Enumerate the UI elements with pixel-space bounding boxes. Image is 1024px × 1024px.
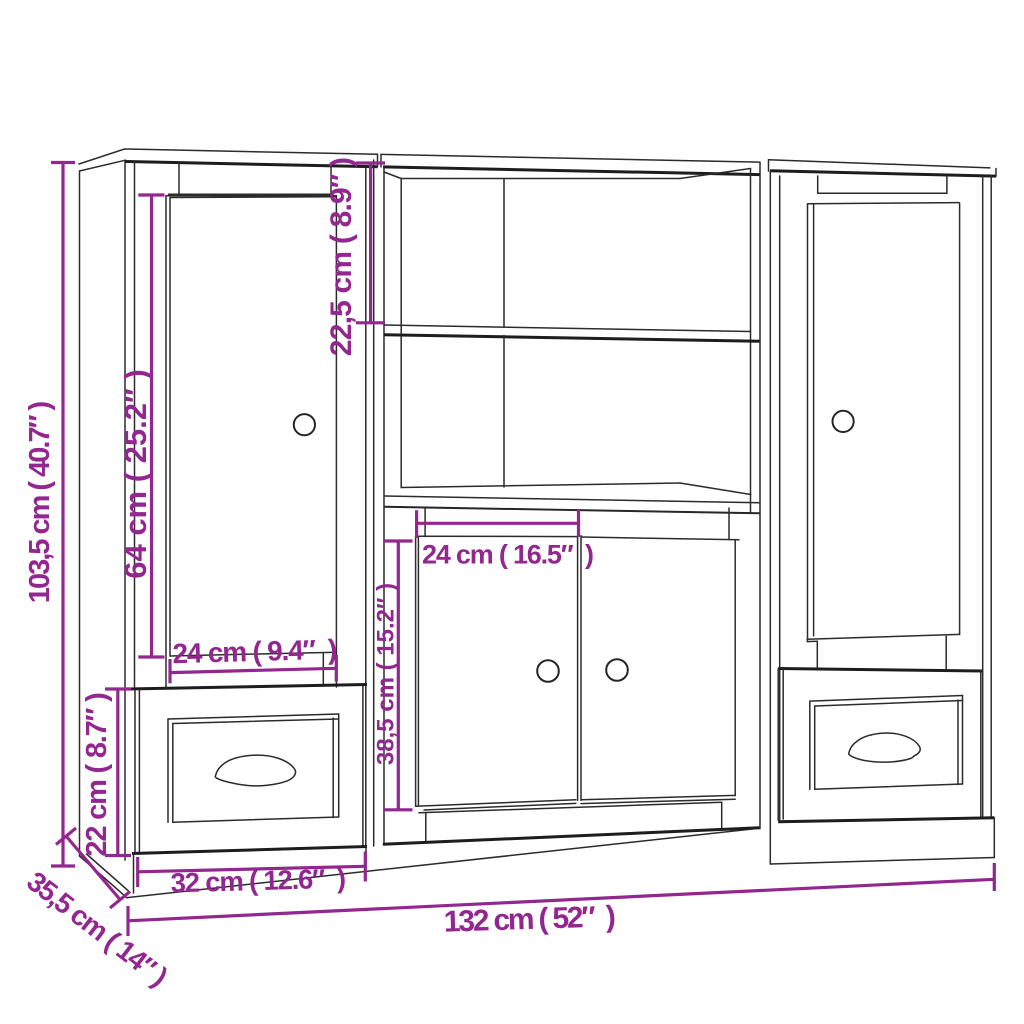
svg-text:22,5 cm ( 8.9″ ): 22,5 cm ( 8.9″ ) — [325, 158, 358, 356]
svg-text:24 cm ( 16.5″ ): 24 cm ( 16.5″ ) — [422, 540, 593, 570]
svg-text:132 cm ( 52″ ): 132 cm ( 52″ ) — [443, 900, 615, 938]
svg-text:32 cm ( 12.6″ ): 32 cm ( 12.6″ ) — [170, 863, 345, 899]
svg-text:24 cm ( 9.4″ ): 24 cm ( 9.4″ ) — [172, 634, 336, 670]
svg-text:22 cm ( 8.7″ ): 22 cm ( 8.7″ ) — [81, 693, 113, 857]
svg-text:64 cm ( 25.2″ ): 64 cm ( 25.2″ ) — [118, 369, 153, 579]
svg-text:103,5 cm ( 40.7″ ): 103,5 cm ( 40.7″ ) — [24, 401, 56, 603]
svg-text:38,5 cm ( 15.2″ ): 38,5 cm ( 15.2″ ) — [373, 583, 400, 765]
